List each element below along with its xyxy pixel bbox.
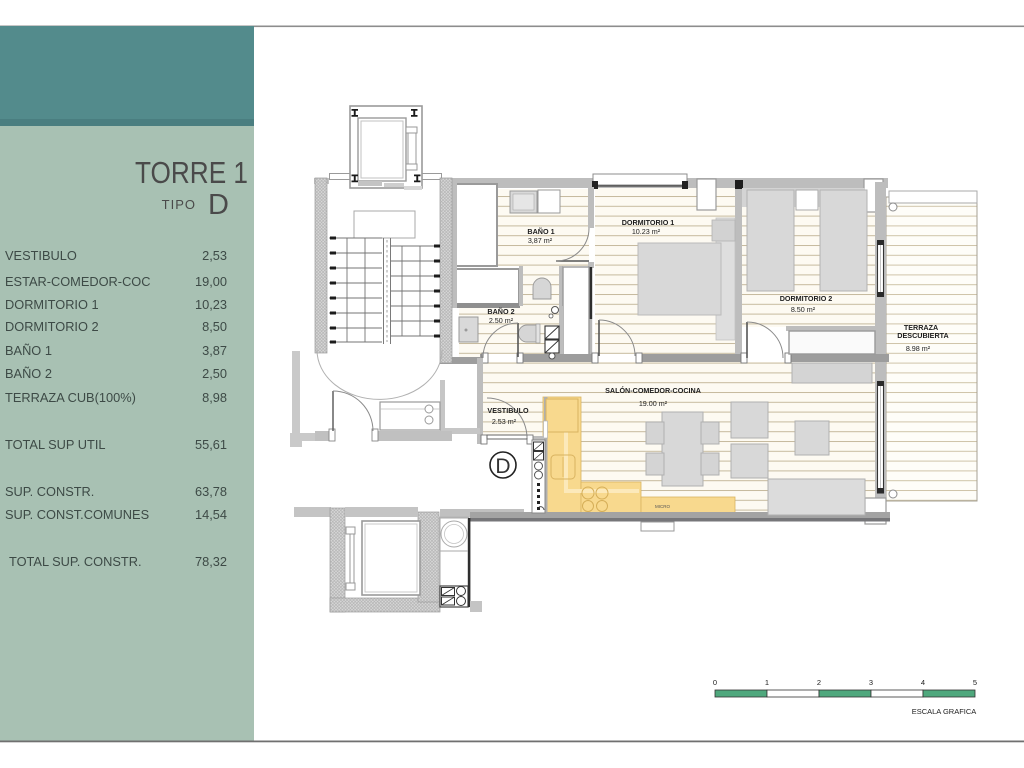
svg-text:ESTAR-COMEDOR-COC: ESTAR-COMEDOR-COC	[5, 274, 151, 289]
svg-text:DORMITORIO 2: DORMITORIO 2	[780, 294, 833, 303]
svg-text:63,78: 63,78	[195, 484, 227, 499]
svg-text:SALÓN-COMEDOR-COCINA: SALÓN-COMEDOR-COCINA	[605, 386, 701, 395]
svg-text:BAÑO 2: BAÑO 2	[5, 366, 52, 381]
svg-text:3,87: 3,87	[202, 343, 227, 358]
svg-text:78,32: 78,32	[195, 554, 227, 569]
svg-text:0: 0	[713, 678, 717, 687]
svg-text:ESCALA GRAFICA: ESCALA GRAFICA	[912, 707, 977, 716]
svg-text:DORMITORIO 1: DORMITORIO 1	[5, 297, 99, 312]
svg-text:TORRE 1: TORRE 1	[135, 155, 248, 190]
svg-text:TOTAL SUP. CONSTR.: TOTAL SUP. CONSTR.	[9, 554, 142, 569]
svg-text:10,23: 10,23	[195, 297, 227, 312]
svg-text:1: 1	[765, 678, 769, 687]
svg-text:8,50: 8,50	[202, 319, 227, 334]
svg-text:19.00 m²: 19.00 m²	[639, 399, 668, 408]
svg-text:5: 5	[973, 678, 977, 687]
svg-text:SUP. CONSTR.: SUP. CONSTR.	[5, 484, 94, 499]
svg-text:MICRO: MICRO	[655, 504, 670, 509]
svg-text:2,50: 2,50	[202, 366, 227, 381]
svg-text:2.50 m²: 2.50 m²	[489, 316, 514, 325]
svg-text:BAÑO 1: BAÑO 1	[5, 343, 52, 358]
svg-text:19,00: 19,00	[195, 274, 227, 289]
svg-text:55,61: 55,61	[195, 437, 227, 452]
svg-text:DESCUBIERTA: DESCUBIERTA	[897, 331, 948, 340]
svg-text:8.98 m²: 8.98 m²	[906, 344, 931, 353]
svg-text:3: 3	[869, 678, 873, 687]
svg-text:8,98: 8,98	[202, 390, 227, 405]
svg-text:10.23 m²: 10.23 m²	[632, 227, 661, 236]
svg-text:2,53: 2,53	[202, 248, 227, 263]
svg-text:SUP. CONST.COMUNES: SUP. CONST.COMUNES	[5, 507, 149, 522]
svg-text:BAÑO 1: BAÑO 1	[527, 227, 554, 236]
svg-text:4: 4	[921, 678, 925, 687]
svg-text:VESTIBULO: VESTIBULO	[5, 248, 77, 263]
svg-text:TOTAL SUP UTIL: TOTAL SUP UTIL	[5, 437, 106, 452]
svg-text:2.53 m²: 2.53 m²	[492, 417, 517, 426]
svg-text:14,54: 14,54	[195, 507, 227, 522]
svg-text:8.50 m²: 8.50 m²	[791, 305, 816, 314]
svg-text:TERRAZA CUB(100%): TERRAZA CUB(100%)	[5, 390, 136, 405]
svg-text:3,87 m²: 3,87 m²	[528, 236, 553, 245]
svg-text:D: D	[495, 455, 510, 478]
svg-text:D: D	[208, 189, 229, 221]
svg-text:VESTIBULO: VESTIBULO	[487, 406, 529, 415]
svg-text:2: 2	[817, 678, 821, 687]
svg-text:DORMITORIO 2: DORMITORIO 2	[5, 319, 99, 334]
svg-text:DORMITORIO 1: DORMITORIO 1	[622, 218, 675, 227]
svg-text:TIPO: TIPO	[162, 197, 196, 212]
svg-text:BAÑO 2: BAÑO 2	[487, 307, 514, 316]
